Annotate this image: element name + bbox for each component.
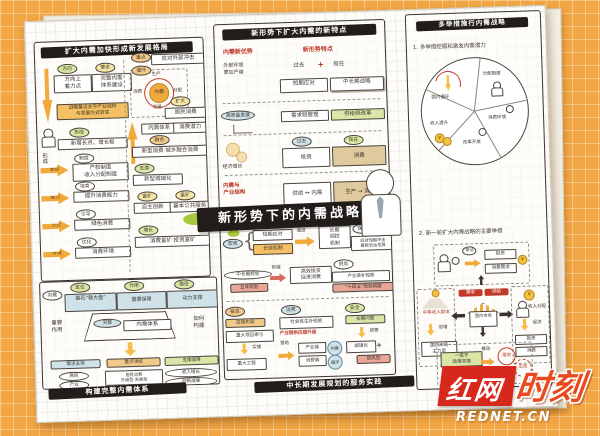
right-arrow-icon (270, 273, 286, 282)
list-item: 1. 多举措挖掘和激发内需潜力 (413, 43, 486, 52)
section-heading: 新形势特点 (303, 46, 333, 55)
arrow-caption: 递进 (296, 229, 305, 235)
plus-icon: + (376, 341, 382, 350)
flow-box: 短期应对 (252, 229, 292, 241)
flow-box: 内需体系 (141, 123, 177, 135)
pie-label: 收入提升 (430, 121, 448, 127)
flow-box: 长效机制 (253, 243, 293, 255)
pie-chart: 国内循环 分配制度 消费环境 改革开放 收入提升 ¥ (419, 56, 530, 167)
pie-label: 消费环境 (488, 115, 506, 121)
down-arrow-icon (358, 327, 366, 338)
down-arrow-icon (41, 68, 53, 122)
diagram-label: 收入分配 (528, 304, 546, 310)
flow-box: 高效投资 促进消费 (290, 266, 332, 284)
watermark-brand-left: 红网 (444, 370, 505, 407)
section-heading: 内需新优势 (223, 48, 253, 57)
arrow-label: 基点 (40, 164, 68, 177)
demand-chip: 需求 (458, 289, 482, 297)
flow-box: 重要保障 (116, 291, 167, 311)
flow-box: 重大项目牵引 (226, 330, 274, 344)
down-arrow-icon (520, 319, 528, 331)
label-bubble: 重点 (131, 52, 151, 63)
section-label: 经济增长 (222, 164, 242, 171)
highlight-text: 产业链供应链升级 (280, 330, 317, 337)
flow-box: 居民消费 (165, 107, 207, 119)
label-bubble: 富矿 (175, 190, 195, 201)
label-bubble: 现在 (344, 135, 364, 146)
flow-box: 消费潜力 (173, 122, 207, 134)
watermark-brand-right: 时刻 (513, 360, 587, 409)
person-icon (438, 261, 451, 272)
panel-title: 新形势下扩大内需的新特点 (222, 24, 376, 40)
person-icon (41, 136, 55, 147)
label-bubble: 高质量发展 (221, 110, 255, 121)
highlight-chip: 防风险 (356, 354, 390, 364)
label-bubble: 过去 (292, 136, 312, 147)
flow-box: 供给侧改革 (331, 108, 385, 121)
pie-divider (474, 100, 526, 112)
supply-chip: 供给 (484, 288, 508, 296)
flow-box: 动力支撑 (166, 289, 219, 309)
side-label: 形成 (40, 153, 47, 164)
step-curve-icon (233, 124, 252, 134)
label-bubble: 定位 (70, 282, 90, 293)
flow-box: 投资 (282, 147, 331, 168)
label-bubble: 例如 (333, 259, 353, 270)
label-bubble: 作用 (124, 281, 144, 292)
gear-icon (236, 151, 247, 162)
watermark-logo: 红网 时刻 REDNET.CN (440, 356, 598, 434)
flow-box: 产业端 (298, 342, 326, 354)
divider (222, 98, 380, 104)
panel-expand-demand: 扩大内需加快形成新发展格局 方向 方向上 着力点 要求 完整内需 体系建设 战略… (33, 37, 210, 282)
label-bubble: 形成 (69, 127, 89, 138)
label-bubble: 安全 (345, 303, 365, 314)
section-heading: 内需与 产业结构 (223, 182, 245, 197)
tag-chip: 长期问题 (345, 314, 385, 325)
label-bubble: 融合 (149, 135, 169, 146)
flow-box: 新增长点、增长极 (58, 137, 128, 150)
coin-icon: ¥ (523, 289, 534, 300)
flow-box: 基石“稳大盘” (64, 293, 117, 313)
diagram-label: 中等收入群体 (420, 310, 452, 317)
flow-box: 新型消费·城乡融合消费 (132, 145, 208, 158)
flow-box: 消费富矿·投资富矿 (135, 235, 211, 248)
flow-box: 完整内需 体系建设 (92, 73, 133, 92)
flow-box: 产权制度 收入分配制度 (72, 162, 129, 182)
plus-icon: + (317, 60, 324, 71)
column-header: 重点领域 (106, 357, 160, 368)
person-icon (506, 105, 514, 113)
flow-box: 消费端 (298, 355, 326, 367)
coin-icon: ¥ (517, 255, 527, 265)
flow-box: 重大工程 (227, 358, 267, 371)
column-header: 支撑保障 (164, 355, 218, 366)
side-note: 如何 构建 (193, 316, 204, 331)
flow-box: 短期应对 (280, 78, 328, 94)
flow-box: 社会民生补短板 (279, 316, 333, 330)
pie-divider (474, 58, 481, 111)
list-item: 2. 新一轮扩大内需战略的主要举措 (419, 228, 503, 238)
flow-box: 新型城镇化 (133, 173, 183, 185)
label-bubble: 投资 (225, 307, 245, 318)
flow-box: 需求侧管理 (281, 110, 329, 122)
flow-box: 城镇化 (346, 340, 376, 353)
flow-box: 方向上 着力点 (54, 74, 93, 93)
highlight-chip: “十四五”规划纲要 (332, 282, 394, 293)
pie-label: 国内循环 (431, 95, 449, 101)
flow-box: 中长期战略 (330, 76, 384, 92)
watermark-red-box: 红网 (438, 366, 517, 406)
label-bubble: 支撑 (134, 163, 154, 174)
label-bubble: 宏观 (223, 239, 243, 250)
highlight-note: 战略基点关乎产业结构 与发展方式转变 (56, 102, 128, 120)
arrow-label: 能力 (41, 192, 69, 205)
panel-demand-system: 内需 定位 基石“稳大盘” 作用 重要保障 路径 动力支撑 重要 作用 如何 构… (39, 276, 220, 390)
flow-box: 绿色消费 (74, 218, 130, 231)
person-icon (478, 128, 486, 136)
arrow-caption: 倍增 (439, 325, 448, 331)
arrow-caption: 推动 (481, 347, 490, 353)
column-header: 需求主体 (50, 359, 100, 370)
label-bubble: 路径 (174, 279, 194, 290)
arrow-caption: 落地 (280, 341, 289, 347)
panel-title: 多举措施行内需战略 (416, 17, 528, 31)
flow-box: 长期 调控 机制 (318, 225, 351, 249)
flow-box: 自主创新 (134, 202, 172, 214)
divider (227, 296, 389, 302)
down-arrow-icon (480, 327, 486, 337)
label-bubble: 内需 (42, 290, 62, 301)
sub-note: 外部环境 更加严峻 (223, 62, 243, 76)
circle-label: 循环 (327, 354, 342, 369)
down-arrow-icon (240, 343, 248, 354)
now-label: 现在 (333, 61, 344, 68)
panel-measures: 多举措施行内需战略 1. 多举措挖掘和激发内需潜力 国内循环 分配制度 消费环境… (405, 10, 553, 390)
down-arrow-icon (124, 342, 136, 356)
pie-label: 改革开放 (463, 140, 481, 146)
label-bubble: 要求 (95, 62, 115, 73)
flow-box: 提升消费能力 (73, 190, 129, 203)
past-label: 过去 (293, 63, 304, 70)
right-arrow-icon (278, 351, 294, 360)
arrow-caption: 统筹 (370, 328, 379, 334)
person-icon (491, 87, 503, 96)
tag-chip: 五年规划 (230, 283, 268, 293)
label-bubble: 带动 (462, 246, 477, 255)
person-icon (451, 257, 459, 265)
right-arrow-icon (295, 236, 315, 247)
circle-label: 内需 (327, 340, 342, 355)
arrow-caption: 促进 (532, 320, 541, 326)
flow-box: 应对外部冲击 (151, 53, 205, 66)
shop-icon: 国内市场 (469, 311, 497, 328)
label-bubble: 消费 (281, 305, 301, 316)
flow-node: 消费 (133, 90, 142, 96)
arrow-caption: 实施 (252, 345, 261, 351)
flow-box: 消费需求 (485, 263, 517, 274)
flow-box: 消费环境 (75, 246, 131, 259)
watermark-domain: REDNET.CN (456, 410, 551, 425)
label-bubble: 方向 (57, 64, 77, 75)
pie-label: 分配制度 (483, 71, 501, 77)
flow-box: 产业链补短板 (332, 270, 390, 283)
coin-icon (443, 137, 452, 146)
label-bubble: 富矿 (137, 191, 157, 202)
arrow-label: 环境 (43, 248, 71, 261)
flow-box: 内需体系 (123, 319, 171, 331)
person-doodle (352, 168, 410, 250)
tag-chip: 区域布局 (225, 318, 265, 329)
right-arrow-icon (465, 259, 481, 267)
side-note: 重要 作用 (51, 320, 62, 335)
flow-box: 投资 (484, 249, 516, 260)
infographic-photo: { "colors":{"bg":"#F2A644","paper":"#FDF… (0, 0, 600, 436)
arrow-label: 方式 (42, 220, 70, 233)
flow-box: 消费 (332, 145, 387, 167)
arrow-caption: 衔接 (272, 265, 281, 271)
down-arrow-icon (427, 324, 435, 336)
label-bubble: 增长 (138, 225, 158, 236)
ellipse-label: 中长期规划 (224, 270, 272, 281)
